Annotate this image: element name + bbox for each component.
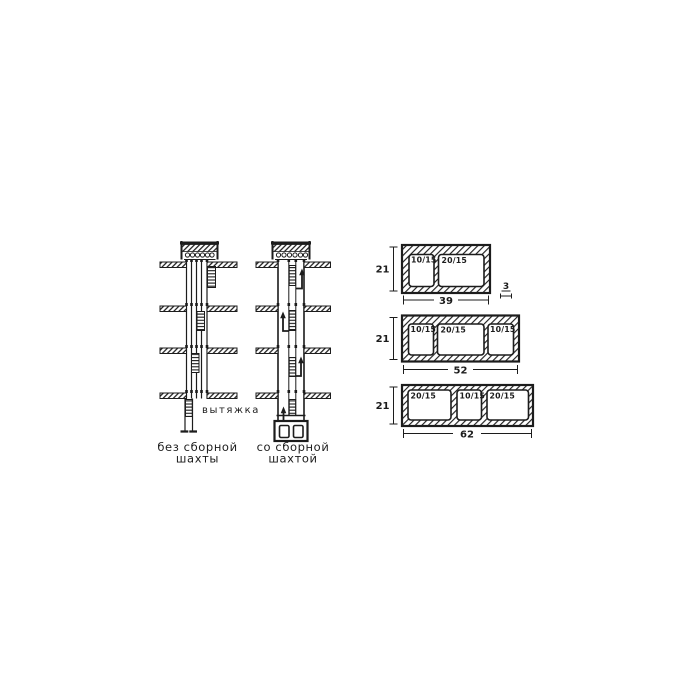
opening-size-label: 20/15 [442,256,468,265]
caption-with-line2: шахтой [268,452,317,466]
scanned-figure-page: вытяжка без сборной шахты [0,0,700,700]
height-dimension: 21 [376,387,398,424]
height-dimension: 21 [376,318,398,360]
opening-size-label: 20/15 [490,392,516,401]
opening-size-label: 10/15 [411,325,437,334]
dimension-label: 39 [439,296,453,307]
opening-size-label: 20/15 [411,392,437,401]
width-dimension: 39 [404,296,489,308]
collector-base-block [275,416,308,442]
airflow-arrows [280,269,305,422]
opening-size-label: 10/15 [411,256,437,265]
shaft-diagram-with-collector: со сборной шахтой [256,241,331,466]
airflow-arrow-up-icon [280,312,289,332]
cap-vent-openings [185,253,214,257]
shaft-diagram-without-collector: вытяжка без сборной шахты [157,241,260,466]
dimension-label: 21 [376,265,390,276]
opening-size-label: 10/15 [490,325,516,334]
exhaust-label: вытяжка [202,405,260,416]
roof-cap [271,241,311,260]
vent-block-section-39: 10/15 20/15 21 39 3 [376,245,512,307]
opening-size-label: 10/15 [460,392,486,401]
width-dimension: 62 [404,429,532,441]
airflow-arrow-up-icon [281,407,289,422]
height-dimension: 21 [376,247,398,291]
width-dimension: 52 [404,365,518,377]
airflow-arrow-up-icon [296,357,304,377]
dimension-label: 21 [376,334,390,345]
opening-size-label: 20/15 [441,326,467,335]
dimension-label: 62 [460,430,474,441]
dimension-label: 21 [376,401,390,412]
vent-block-section-52: 10/15 20/15 10/15 21 52 [376,316,519,377]
caption-without-line2: шахты [176,452,219,466]
wall-thickness-dimension: 3 [501,282,512,299]
roof-cap [180,241,219,260]
ventilation-blocks-diagram: вытяжка без сборной шахты [0,0,700,700]
dimension-label: 52 [454,366,468,377]
cap-vent-openings [276,253,307,257]
vent-block-section-62: 20/15 10/15 20/15 21 62 [376,385,533,441]
